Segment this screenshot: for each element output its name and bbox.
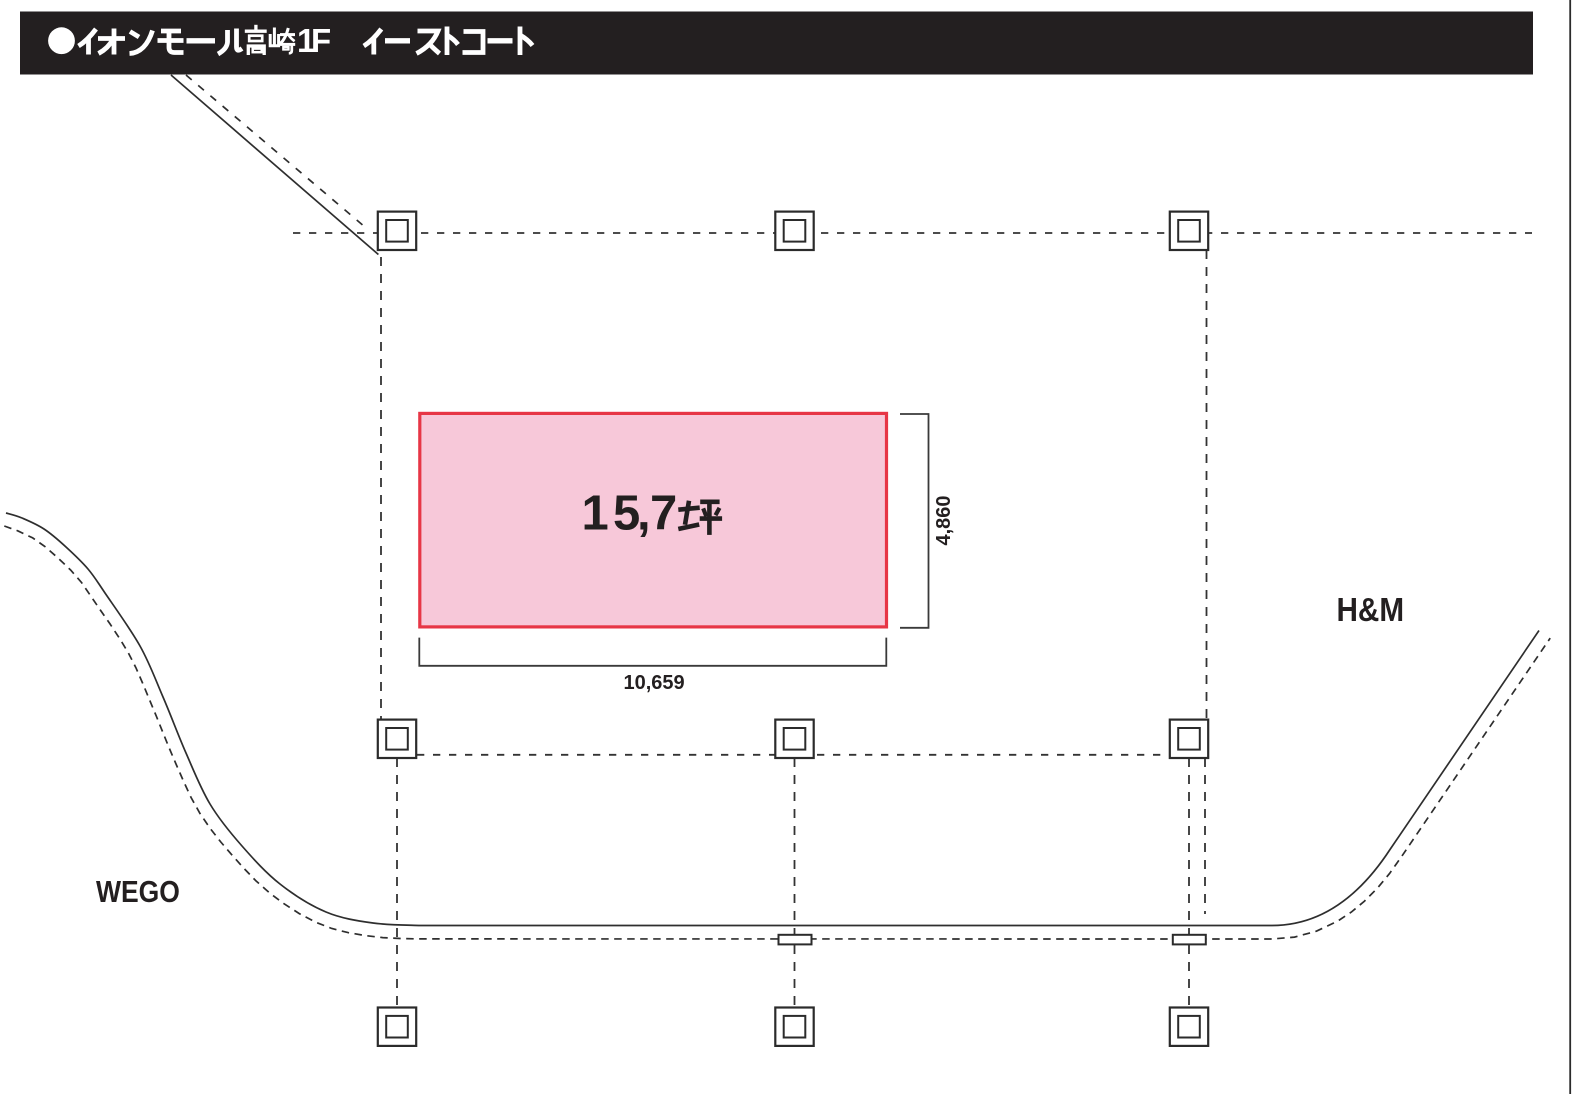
svg-text:F: F: [311, 22, 331, 59]
svg-text:H&M: H&M: [1337, 592, 1405, 629]
svg-text:7: 7: [650, 487, 677, 541]
svg-text:4,860: 4,860: [933, 495, 955, 545]
svg-text:WEGO: WEGO: [96, 875, 180, 909]
svg-text:1: 1: [582, 487, 609, 541]
svg-text:10,659: 10,659: [624, 672, 685, 694]
svg-text:,: ,: [637, 487, 651, 541]
